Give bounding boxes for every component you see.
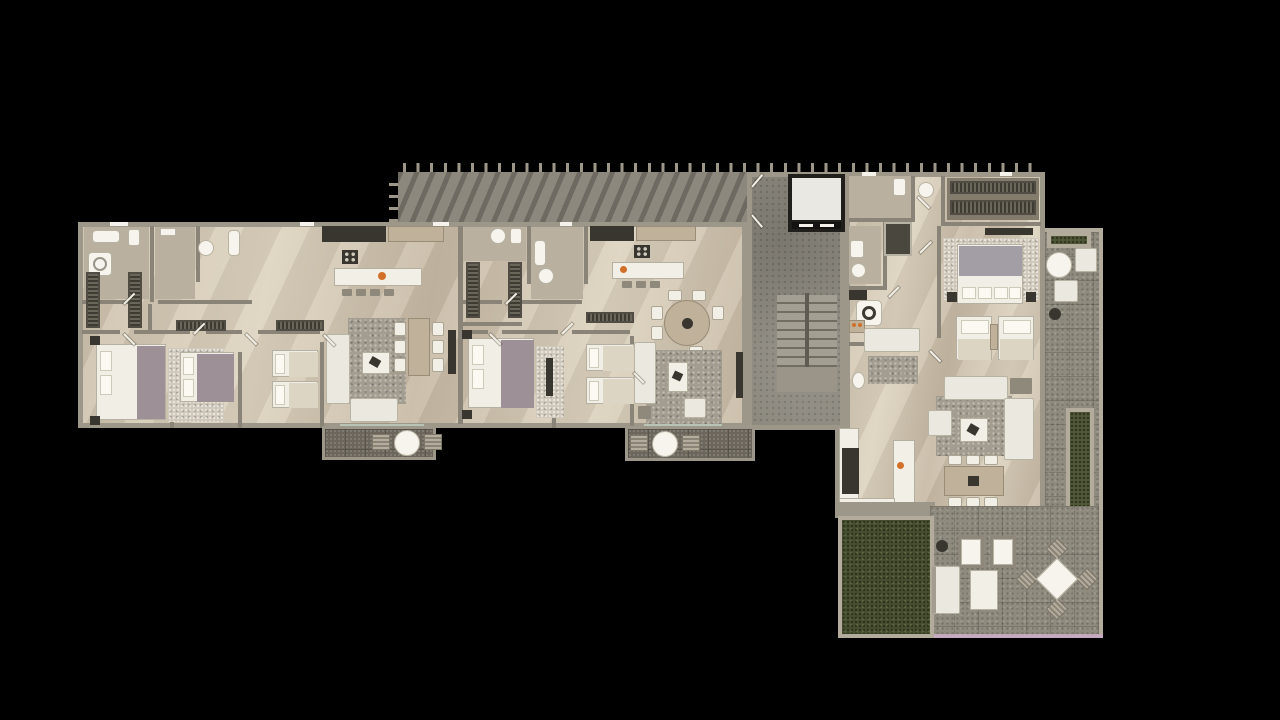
fruit-bowl	[620, 266, 627, 273]
fridge-oven-column	[842, 448, 859, 494]
dining-table	[408, 318, 430, 376]
kitchen-counter	[636, 226, 696, 241]
detail-shape	[993, 539, 1013, 565]
wall	[238, 352, 242, 428]
wall	[196, 226, 200, 282]
l-sofa-right	[1004, 398, 1034, 460]
detail-shape	[622, 281, 632, 288]
armchair	[928, 410, 952, 436]
elevator	[788, 174, 845, 232]
window	[1000, 172, 1012, 176]
window	[300, 222, 314, 226]
den-rug	[868, 356, 918, 384]
fruit-bowl	[378, 272, 386, 280]
closet-rack	[508, 262, 522, 318]
wall	[148, 304, 152, 330]
wall	[911, 176, 915, 218]
detail-shape	[370, 289, 380, 296]
balcony-bench	[424, 434, 442, 450]
side-table	[1010, 378, 1032, 394]
toilet	[893, 178, 906, 196]
closet-rack	[466, 262, 480, 318]
console	[990, 324, 998, 350]
detail-shape	[289, 352, 318, 377]
detail-shape	[394, 340, 406, 354]
wardrobe-run	[947, 178, 1039, 220]
twin-lounge-bed	[998, 316, 1034, 360]
sink-round	[851, 263, 866, 278]
terrace-edge-trim	[930, 634, 1103, 638]
detail-shape	[1003, 320, 1031, 334]
detail-shape	[1000, 339, 1033, 360]
detail-shape	[650, 281, 660, 288]
nightstand	[90, 336, 100, 345]
detail-shape	[961, 539, 981, 565]
detail-shape	[959, 246, 1022, 276]
sofa	[350, 398, 398, 422]
bathroom-floor	[155, 227, 195, 299]
detail-shape	[858, 323, 862, 327]
wall	[937, 226, 941, 338]
lawn	[838, 516, 934, 638]
den-sofa	[864, 328, 920, 352]
wall	[584, 226, 588, 284]
outdoor-sofa	[932, 566, 960, 614]
wall	[502, 330, 558, 334]
detail-shape	[289, 383, 318, 408]
floorplan-canvas	[0, 0, 1280, 720]
sofa	[634, 342, 656, 404]
tv-console	[736, 352, 743, 398]
window	[560, 222, 572, 226]
detail-shape	[603, 379, 634, 404]
pergola-rafter-ends-left	[389, 178, 398, 222]
double-bed	[96, 344, 166, 420]
detail-shape	[852, 323, 856, 327]
detail-shape	[589, 381, 599, 401]
elevator-doors	[792, 222, 841, 229]
bathtub	[92, 230, 120, 243]
washer-drum	[862, 306, 876, 320]
kitchen-appliance-run	[322, 226, 386, 242]
detail-shape	[958, 339, 991, 360]
side-table	[638, 406, 651, 419]
pergola-rafter-ends-top	[403, 163, 1040, 172]
stair-landing	[777, 367, 837, 392]
twin-lounge-bed	[956, 316, 992, 360]
nightstand	[947, 292, 957, 302]
detail-shape	[651, 326, 663, 340]
master-bed	[957, 244, 1023, 304]
kitchen-counter	[388, 226, 444, 242]
bed-blanket	[501, 340, 534, 408]
detail-shape	[342, 289, 352, 296]
detail-shape	[948, 455, 962, 465]
balcony-round-table	[652, 431, 678, 457]
nightstand	[462, 410, 472, 419]
double-bed	[468, 338, 534, 408]
outdoor-side-table	[936, 540, 948, 552]
closet-rack	[86, 272, 100, 328]
closet-rack	[128, 272, 142, 328]
terrace-south-wall	[835, 502, 935, 516]
detail-shape	[100, 375, 112, 395]
bathtub	[228, 230, 240, 256]
detail-shape	[966, 455, 980, 465]
bed-runner	[137, 346, 165, 419]
wall	[320, 342, 324, 428]
laundry-counter	[849, 290, 867, 300]
pergola-corridor	[398, 172, 747, 222]
toilet-round	[852, 372, 865, 389]
detail-shape	[275, 385, 285, 405]
detail-shape	[432, 340, 444, 354]
nightstand	[462, 330, 472, 339]
toilet	[850, 240, 864, 258]
centerpiece	[968, 476, 979, 486]
nightstand	[90, 416, 100, 425]
detail-shape	[668, 290, 682, 301]
detail-shape	[432, 358, 444, 372]
stove	[634, 245, 650, 258]
twin-bed	[586, 377, 634, 404]
stove	[342, 250, 358, 264]
toilet	[510, 228, 522, 244]
kitchen-island	[893, 440, 915, 506]
twin-bed	[272, 350, 318, 377]
l-sofa-top	[944, 376, 1008, 400]
wardrobe	[276, 320, 324, 331]
tv-console	[546, 358, 553, 396]
sink-round	[490, 228, 506, 244]
sink-round	[198, 240, 214, 256]
shower	[884, 222, 912, 256]
armchair	[684, 398, 706, 418]
outdoor-chair	[1054, 280, 1078, 302]
detail-shape	[950, 181, 1036, 194]
wall	[82, 330, 120, 334]
wall	[941, 222, 1041, 226]
fruit-bowl	[897, 462, 904, 469]
wall	[516, 300, 582, 304]
double-bed	[180, 352, 234, 402]
detail-shape	[432, 322, 444, 336]
detail-shape	[820, 224, 834, 227]
grill	[1049, 308, 1061, 320]
balcony-bench	[630, 435, 648, 451]
cabinet	[849, 320, 865, 333]
wardrobe	[586, 312, 634, 323]
detail-shape	[994, 287, 1008, 299]
detail-shape	[651, 306, 663, 320]
detail-shape	[472, 369, 484, 389]
detail-shape	[692, 290, 706, 301]
tv-console	[448, 330, 456, 374]
stair-flight-left	[777, 295, 805, 367]
detail-shape	[978, 287, 992, 299]
detail-shape	[100, 351, 112, 371]
outdoor-coffee-table	[970, 570, 998, 610]
sofa	[326, 334, 350, 404]
wall	[572, 330, 630, 334]
toilet-round	[538, 268, 554, 284]
detail-shape	[589, 348, 599, 368]
lounge-chair	[958, 536, 984, 568]
bathtub	[534, 240, 546, 266]
nightstand	[1026, 292, 1036, 302]
wall	[462, 322, 522, 326]
detail-shape	[183, 357, 194, 375]
washer-drum	[93, 257, 107, 271]
balcony-round-table	[394, 430, 420, 456]
detail-shape	[1009, 287, 1021, 299]
balcony-bench	[372, 434, 390, 450]
detail-shape	[384, 289, 394, 296]
centerpiece	[682, 318, 693, 329]
detail-shape	[961, 320, 989, 334]
detail-shape	[183, 379, 194, 397]
detail-shape	[950, 200, 1036, 215]
detail-shape	[603, 346, 634, 371]
detail-shape	[394, 358, 406, 372]
elevator-cab	[792, 178, 841, 220]
sink-round	[918, 182, 934, 198]
bed-blanket	[197, 354, 234, 402]
balcony-bench	[682, 435, 700, 451]
sink	[160, 228, 176, 236]
detail-shape	[962, 287, 976, 299]
detail-shape	[275, 354, 285, 374]
tv-shelf	[985, 228, 1033, 235]
wall	[941, 176, 945, 226]
long-planter	[1066, 408, 1094, 514]
wall	[150, 226, 154, 302]
outdoor-chair	[1075, 248, 1097, 272]
lounge-chair	[990, 536, 1016, 568]
twin-bed	[272, 381, 318, 408]
detail-shape	[394, 322, 406, 336]
planter-box	[1047, 232, 1091, 248]
detail-shape	[799, 224, 813, 227]
detail-shape	[636, 281, 646, 288]
bistro-table	[1046, 252, 1072, 278]
twin-bed	[586, 344, 634, 371]
detail-shape	[356, 289, 366, 296]
toilet	[128, 229, 140, 246]
window	[110, 222, 128, 226]
kitchen-appliance-run	[590, 226, 634, 241]
wall	[158, 300, 252, 304]
detail-shape	[472, 345, 484, 365]
detail-shape	[712, 306, 724, 320]
detail-shape	[984, 455, 998, 465]
